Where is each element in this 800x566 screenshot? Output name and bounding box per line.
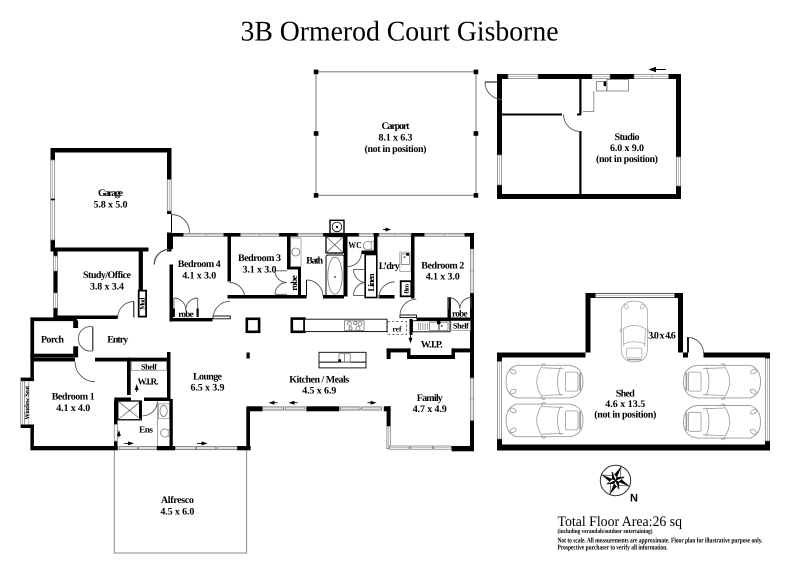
- svg-text:robe: robe: [452, 308, 468, 318]
- svg-text:W.I.R.: W.I.R.: [138, 377, 159, 387]
- svg-text:4.5 x 6.9: 4.5 x 6.9: [302, 385, 336, 396]
- svg-text:Bedroom 3: Bedroom 3: [238, 253, 281, 264]
- svg-text:Bedroom 2: Bedroom 2: [421, 260, 464, 271]
- svg-text:6.5 x 3.9: 6.5 x 3.9: [191, 382, 225, 393]
- svg-text:Bedroom 4: Bedroom 4: [178, 259, 221, 270]
- svg-text:Shelf: Shelf: [141, 362, 157, 371]
- svg-text:Kitchen / Meals: Kitchen / Meals: [289, 374, 349, 385]
- svg-text:Bath: Bath: [306, 256, 323, 267]
- svg-text:Carport: Carport: [382, 121, 411, 132]
- svg-text:WC: WC: [348, 240, 362, 250]
- svg-text:Entry: Entry: [107, 334, 128, 345]
- svg-text:Lounge: Lounge: [193, 371, 223, 382]
- svg-text:(not in position): (not in position): [594, 410, 656, 421]
- svg-text:L’dry: L’dry: [379, 261, 400, 272]
- svg-text:Shelf: Shelf: [453, 321, 469, 330]
- svg-text:4.5 x 6.0: 4.5 x 6.0: [160, 507, 194, 518]
- svg-text:Family: Family: [417, 393, 443, 404]
- svg-text:Ens: Ens: [139, 424, 153, 434]
- svg-text:ref: ref: [393, 324, 402, 333]
- svg-text:(not in position): (not in position): [365, 144, 427, 155]
- svg-text:6.0 x 9.0: 6.0 x 9.0: [610, 143, 644, 154]
- svg-text:3.1 x 3.0: 3.1 x 3.0: [243, 265, 277, 276]
- svg-text:Bedroom 1: Bedroom 1: [52, 392, 95, 403]
- svg-text:(including verandah/outdoor en: (including verandah/outdoor entertaining…: [558, 528, 653, 535]
- svg-text:3.8 x 3.4: 3.8 x 3.4: [90, 282, 124, 293]
- svg-text:4.1 x 3.0: 4.1 x 3.0: [426, 272, 460, 283]
- svg-text:Study/Office: Study/Office: [83, 270, 132, 281]
- svg-text:W.I.P.: W.I.P.: [421, 340, 444, 351]
- svg-text:N: N: [630, 493, 638, 505]
- svg-text:Prospective purchaser to verif: Prospective purchaser to verify all info…: [558, 544, 668, 552]
- svg-text:Alfresco: Alfresco: [161, 495, 194, 506]
- svg-text:3B Ormerod Court Gisborne: 3B Ormerod Court Gisborne: [241, 17, 559, 48]
- svg-text:Linen: Linen: [366, 273, 376, 291]
- svg-text:Shed: Shed: [616, 389, 635, 400]
- svg-text:Brm: Brm: [404, 283, 411, 294]
- svg-text:4.7 x 4.9: 4.7 x 4.9: [413, 404, 447, 415]
- svg-text:Garage: Garage: [98, 188, 124, 199]
- svg-text:Mud: Mud: [140, 297, 147, 309]
- svg-text:Window Seat: Window Seat: [24, 385, 31, 420]
- svg-text:3.0 x 4.6: 3.0 x 4.6: [648, 331, 676, 342]
- svg-text:5.8 x 5.0: 5.8 x 5.0: [94, 200, 128, 211]
- svg-text:Studio: Studio: [615, 132, 640, 143]
- svg-text:robe: robe: [289, 275, 299, 291]
- svg-text:Porch: Porch: [41, 335, 64, 346]
- svg-text:4.6 x 13.5: 4.6 x 13.5: [605, 399, 645, 410]
- svg-text:(not in position): (not in position): [596, 154, 658, 165]
- svg-text:4.1 x 3.0: 4.1 x 3.0: [182, 271, 216, 282]
- svg-text:robe: robe: [178, 309, 194, 319]
- svg-text:8.1 x 6.3: 8.1 x 6.3: [379, 133, 413, 144]
- svg-text:4.1 x 4.0: 4.1 x 4.0: [56, 403, 90, 414]
